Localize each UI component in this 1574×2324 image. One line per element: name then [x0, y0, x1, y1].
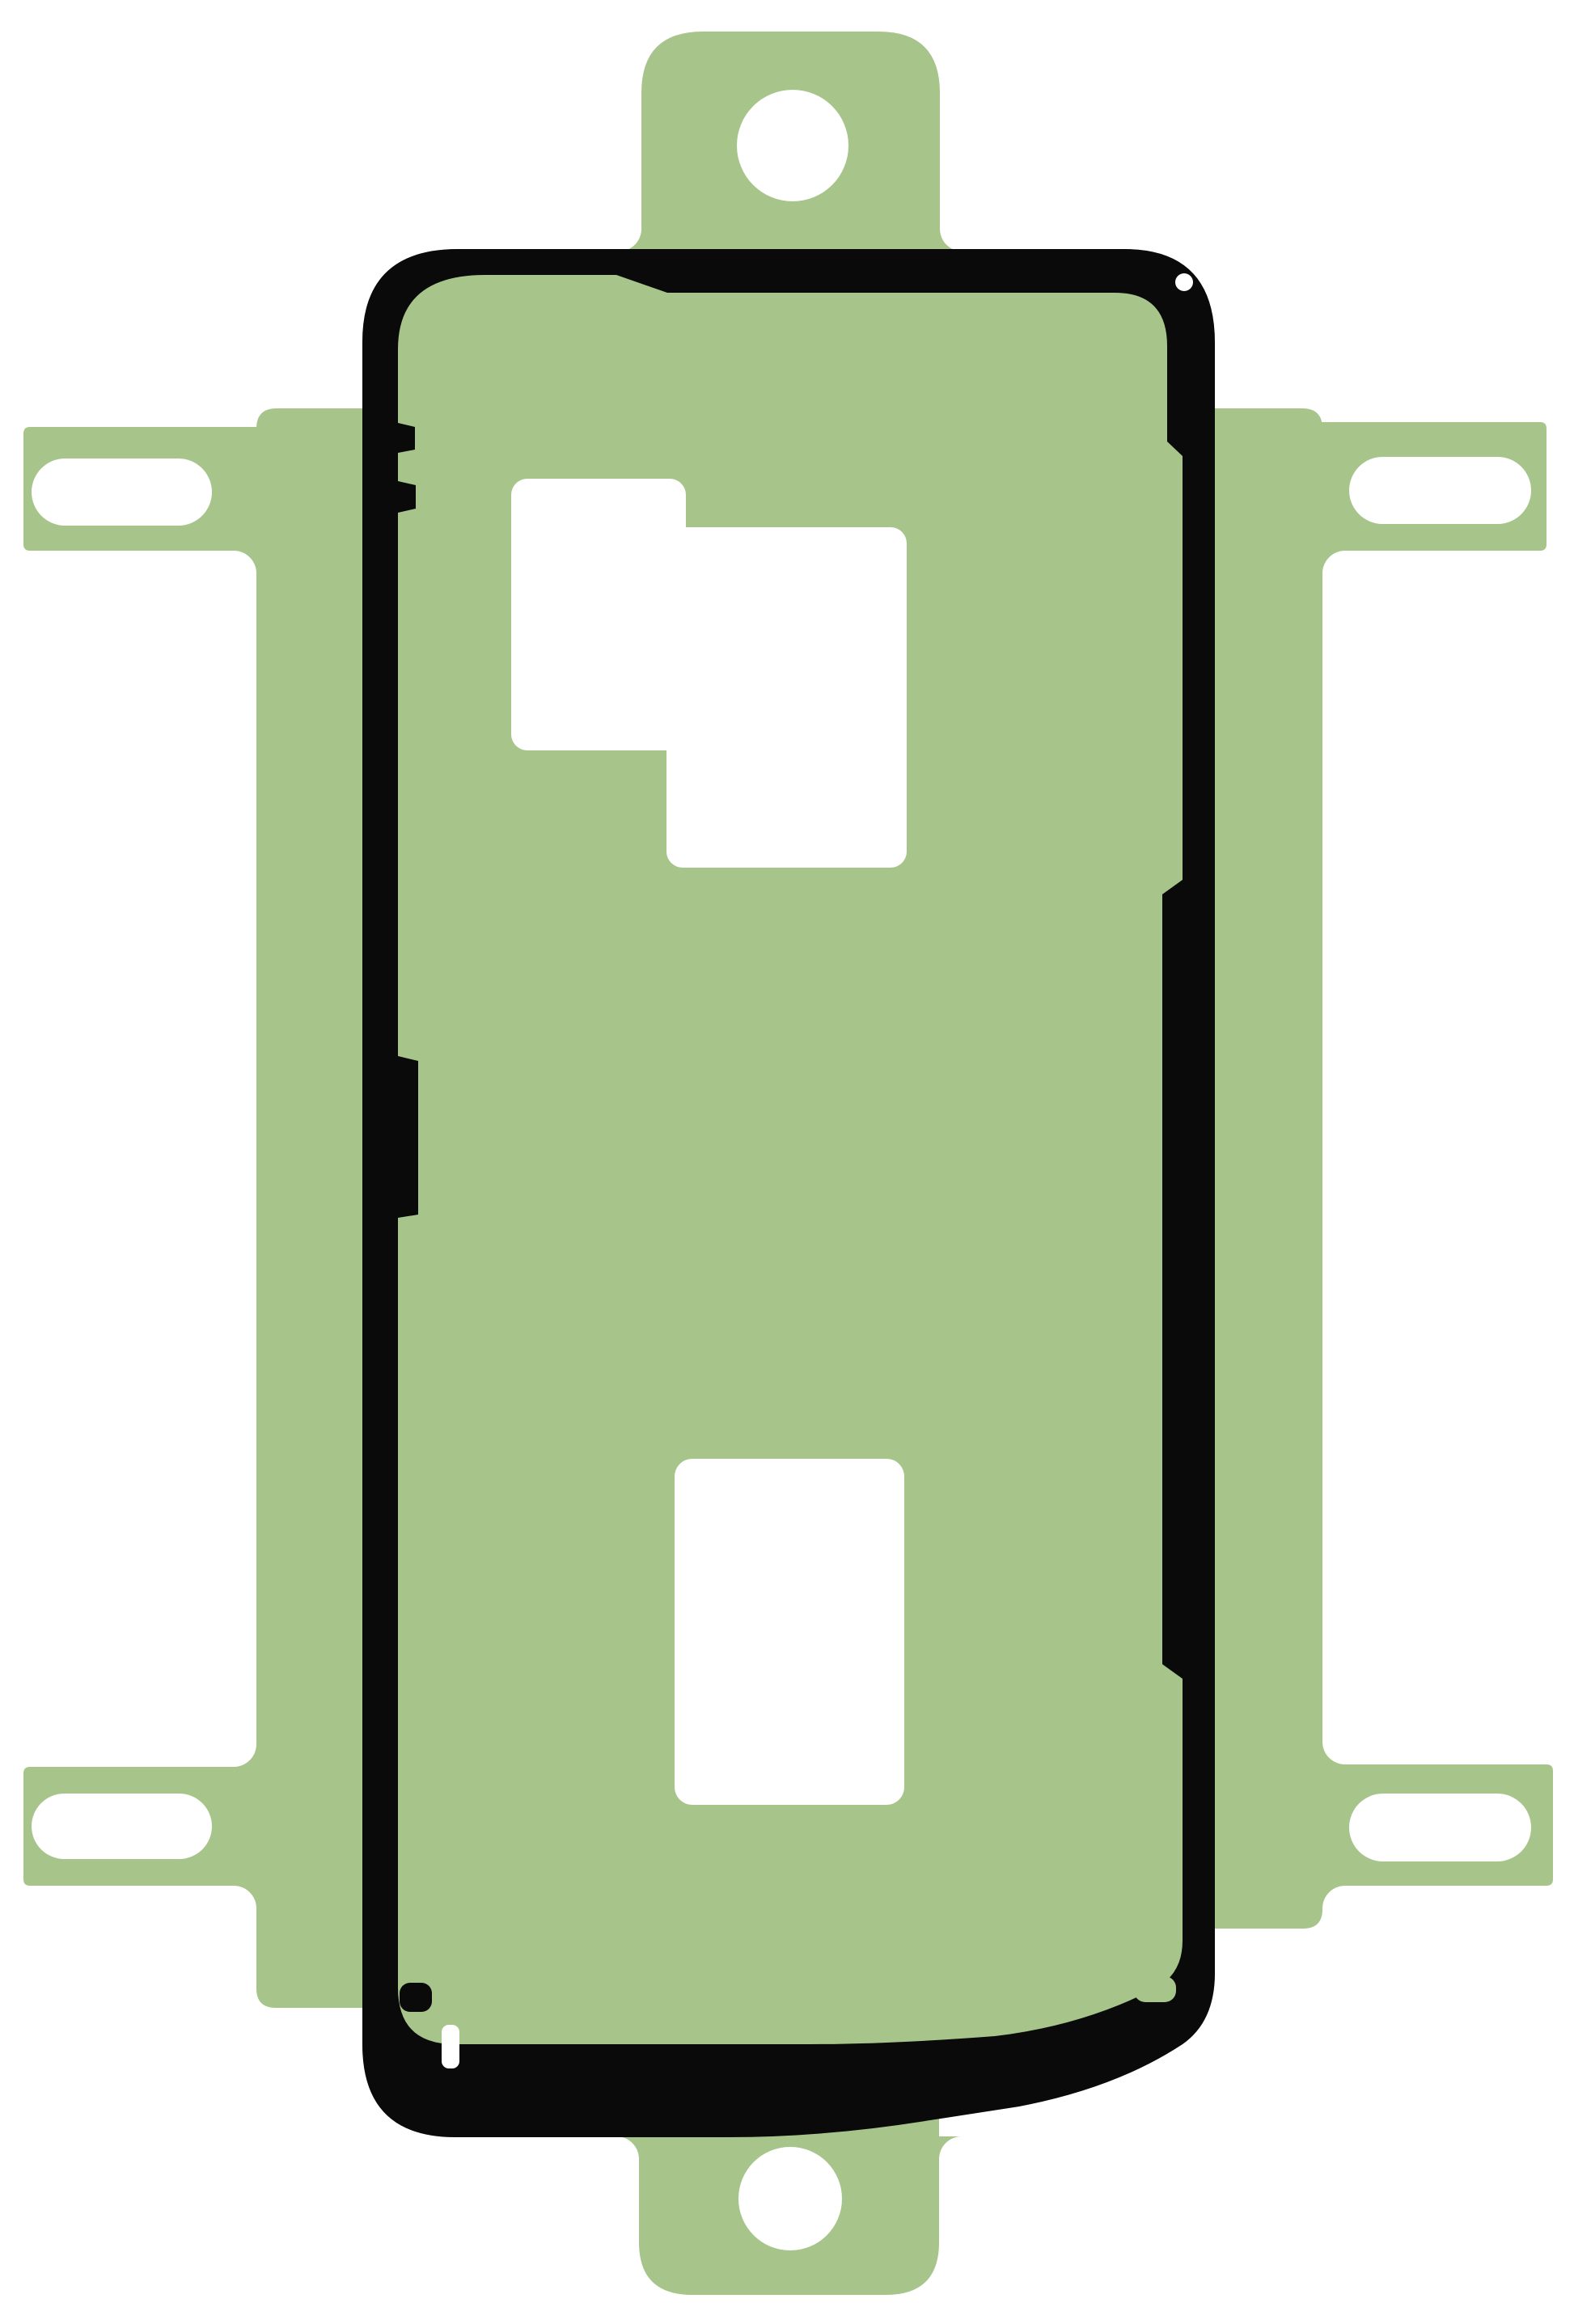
alignment-slot-top-right [1349, 457, 1531, 524]
sheet-nub-bottom-right [1134, 1976, 1176, 2002]
frame-nub-bottom-left [400, 1983, 432, 2012]
right-rail [1199, 408, 1322, 1929]
alignment-slot-top-left [32, 458, 212, 526]
frame-slit-bottom-left [442, 2025, 459, 2068]
lower-cutout [675, 1459, 904, 1805]
hanger-hole-top [737, 90, 848, 201]
camera-cutout-upper [511, 479, 686, 750]
photo-canvas [0, 0, 1574, 2324]
alignment-slot-bottom-right [1349, 1794, 1531, 1861]
hanger-hole-bottom [738, 2147, 842, 2250]
alignment-slot-bottom-left [32, 1794, 212, 1859]
adhesive-sheet-photo [0, 0, 1574, 2324]
corner-notch-top-right [1175, 273, 1193, 291]
camera-cutout-lower [666, 527, 907, 868]
